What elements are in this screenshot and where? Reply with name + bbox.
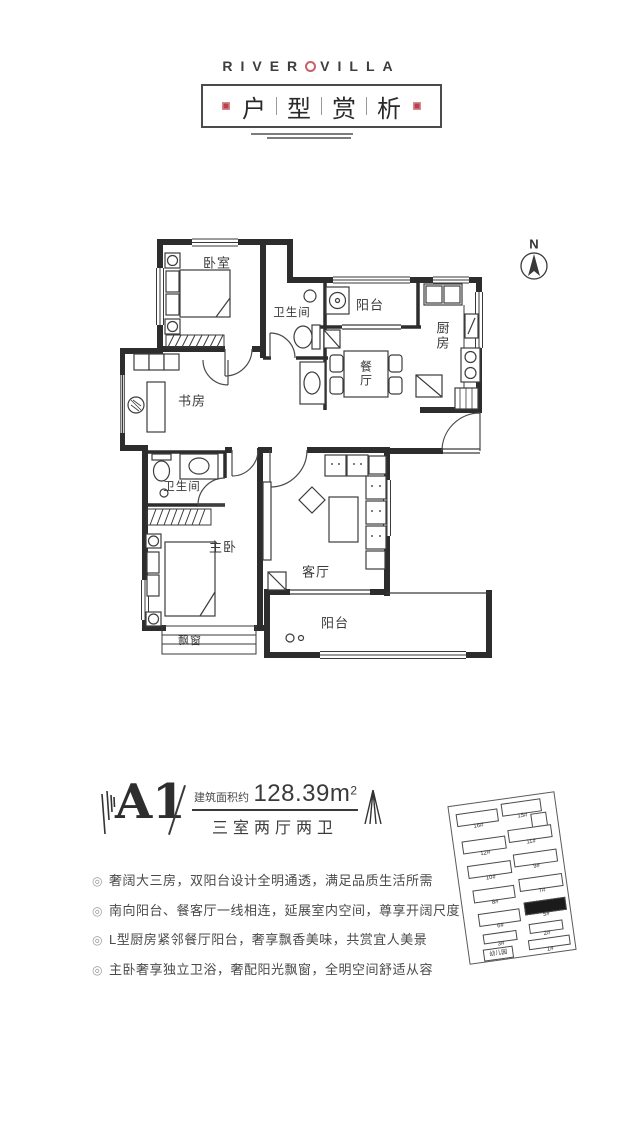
brand-logo: RIVERVILLA [0,58,623,74]
site-plan-building-label: 9# [533,863,541,871]
site-plan-building: 幼儿园 [483,946,514,962]
section-title-box: 户 型 赏 析 [201,84,442,128]
site-plan-building: 10# [467,860,512,879]
bullet-icon: ◎ [92,874,103,888]
site-plan-building: 12# [461,836,506,855]
title-underline-2 [267,137,351,139]
decorative-hatch-left [100,790,116,836]
site-plan-building-label: 6# [497,923,505,931]
feature-item: ◎主卧奢享独立卫浴，奢配阳光飘窗，全明空间舒适从容 [92,959,432,978]
unit-layout: 三室两厅两卫 [192,814,358,838]
feature-text: 主卧奢享独立卫浴，奢配阳光飘窗，全明空间舒适从容 [109,962,433,977]
room-label-bedroom: 卧室 [203,253,231,272]
site-plan-building-label: 7# [538,888,546,896]
north-label: N [529,237,538,252]
floor-plan: 卧室 卫生间 阳台 厨房 餐厅 书房 卫生间 主卧 客厅 阳台 飘窗 N [120,230,550,660]
feature-text: 南向阳台、餐客厅一线相连，延展室内空间，尊享开阔尺度 [109,903,460,918]
room-label-study: 书房 [178,391,206,410]
site-plan-building: 16# [456,808,499,827]
title-char: 析 [377,89,401,124]
brand-left: RIVER [222,58,305,74]
site-plan-building-label: 15# [517,812,528,820]
title-char: 户 [242,89,266,124]
bullet-icon: ◎ [92,933,103,947]
title-divider [321,97,322,115]
decorative-hatch-right [362,788,384,826]
site-plan-building: 7# [518,873,563,892]
room-label-balcony-top: 阳台 [356,295,384,314]
site-plan-building: 2# [529,919,564,934]
room-label-living: 客厅 [302,562,330,581]
unit-area: 建筑面积约 128.39m2 [194,780,364,808]
feature-text: 奢阔大三房，双阳台设计全明通透，满足品质生活所需 [109,873,433,888]
area-superscript: 2 [350,784,357,798]
title-underline [251,133,353,135]
title-divider [276,97,277,115]
feature-text: L型厨房紧邻餐厅阳台，奢享飘香美味，共赏宜人美景 [109,932,427,947]
feature-list: ◎奢阔大三房，双阳台设计全明通透，满足品质生活所需 ◎南向阳台、餐客厅一线相连，… [92,870,432,978]
site-plan-building: 5# [524,897,567,916]
floor-plan-drawing [120,230,550,660]
site-plan: 16#15#13#12#11#10#9#8#7#6#5#3#2#幼儿园1# [447,791,576,964]
site-plan-building: 11# [507,824,552,843]
room-label-dining: 餐厅 [358,360,375,388]
seal-icon [413,102,421,110]
site-plan-building-label: 10# [485,874,496,882]
room-label-bath-bottom: 卫生间 [163,478,201,494]
poster-page: RIVERVILLA 户 型 赏 析 [0,0,623,1131]
bullet-icon: ◎ [92,904,103,918]
site-plan-building-label: 12# [480,850,491,858]
seal-icon [222,102,230,110]
title-char: 赏 [332,89,356,124]
area-label: 建筑面积约 [194,792,249,804]
site-plan-building: 6# [478,908,521,927]
north-arrow-icon [521,253,547,279]
room-label-kitchen: 厨房 [433,321,452,351]
bullet-icon: ◎ [92,963,103,977]
site-plan-building: 1# [528,935,571,951]
brand-right: VILLA [320,58,400,74]
room-label-master: 主卧 [209,537,237,556]
site-plan-building-label: 1# [547,946,555,954]
feature-item: ◎奢阔大三房，双阳台设计全明通透，满足品质生活所需 [92,870,432,889]
site-plan-building-label: 8# [492,899,500,907]
feature-item: ◎L型厨房紧邻餐厅阳台，奢享飘香美味，共赏宜人美景 [92,929,432,948]
room-label-bay-window: 飘窗 [178,632,202,648]
site-plan-building: 3# [483,930,518,945]
unit-rule [192,809,358,811]
site-plan-building: 9# [513,849,558,868]
unit-info-block: A1 建筑面积约 128.39m2 三室两厅两卫 [100,776,385,846]
room-label-bath-top: 卫生间 [273,304,311,320]
site-plan-building-label: 幼儿园 [489,949,508,958]
feature-item: ◎南向阳台、餐客厅一线相连，延展室内空间，尊享开阔尺度 [92,900,432,919]
site-plan-buildings: 16#15#13#12#11#10#9#8#7#6#5#3#2#幼儿园1# [449,792,554,807]
site-plan-building-label: 11# [526,838,536,846]
site-plan-building-label: 16# [473,822,484,830]
brand-dot-icon [305,61,316,72]
title-divider [366,97,367,115]
site-plan-building-label: 5# [543,911,551,919]
site-plan-building: 8# [472,885,515,904]
area-value: 128.39m [253,780,350,807]
title-char: 型 [287,89,311,124]
room-label-balcony-bottom: 阳台 [321,613,349,632]
